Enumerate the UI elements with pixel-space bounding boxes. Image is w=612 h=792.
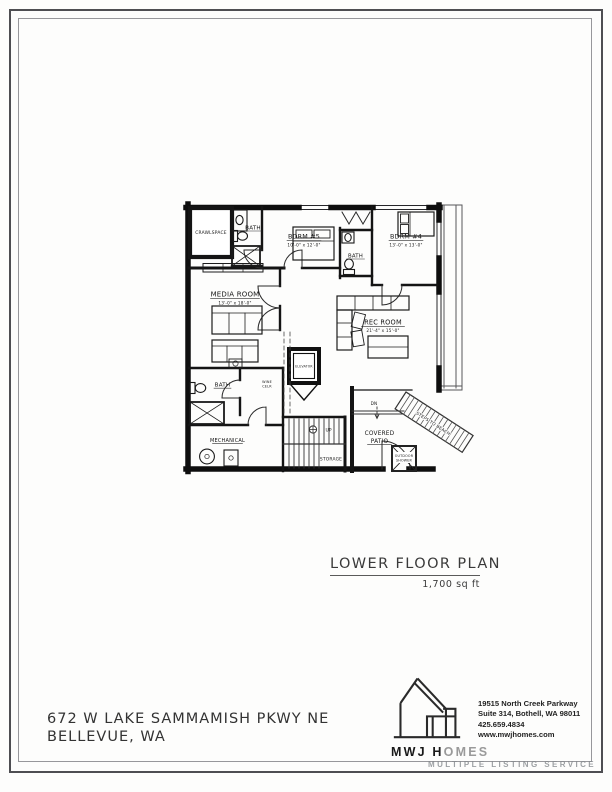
room-dims-bdrm4: 13'-0" x 13'-0" xyxy=(389,243,422,248)
room-label-storage: STORAGE xyxy=(320,457,342,463)
room-label-outdoor-shower-1: OUTDOOR xyxy=(395,454,414,458)
room-label-wine-2: CELR xyxy=(262,384,272,388)
toilet xyxy=(345,259,354,269)
address-line-2: BELLEVUE, WA xyxy=(47,729,329,747)
plan-title: LOWER FLOOR PLAN xyxy=(330,556,480,576)
bifold-closet-door xyxy=(342,212,370,224)
furnace xyxy=(224,450,238,466)
room-label-bdrm5: BDRM #5 xyxy=(288,233,320,241)
room-dims-media-room: 13'-0" x 18'-0" xyxy=(218,301,251,306)
patio-steps xyxy=(352,407,404,419)
contact-phone: 425.659.4834 xyxy=(478,720,580,730)
steps-to-beach: STEPS TO BEACH xyxy=(395,392,473,452)
room-label-bath-lower: BATH xyxy=(215,383,231,389)
plan-title-block: LOWER FLOOR PLAN 1,700 sq ft xyxy=(330,556,480,590)
room-dims-rec-room: 21'-4" x 15'-0" xyxy=(366,328,399,333)
property-address: 672 W LAKE SAMMAMISH PKWY NE BELLEVUE, W… xyxy=(47,711,329,746)
room-label-media-room: MEDIA ROOM xyxy=(211,291,260,299)
stair-label-up: UP xyxy=(326,428,332,434)
room-label-rec-room: REC ROOM xyxy=(364,319,402,327)
mls-watermark: MULTIPLE LISTING SERVICE xyxy=(380,760,596,769)
water-heater xyxy=(200,449,215,464)
contact-address-line-1: 19515 North Creek Parkway xyxy=(478,699,580,709)
floor-plan-flyer-page: STEPS TO BEACH xyxy=(0,0,612,792)
side-table xyxy=(229,359,242,368)
elevator-shaft xyxy=(289,349,319,400)
floor-plan-drawing: STEPS TO BEACH xyxy=(0,0,612,792)
builder-contact-info: 19515 North Creek Parkway Suite 314, Bot… xyxy=(478,699,580,740)
room-label-bath-upper: BATH xyxy=(245,226,261,232)
room-label-covered-patio-2: PATIO xyxy=(371,439,389,445)
builder-name-dark: MWJ H xyxy=(391,745,444,759)
room-label-crawlspace: CRAWLSPACE xyxy=(195,230,226,236)
room-label-bath-mid: BATH xyxy=(348,254,363,260)
room-label-wine-1: WINE xyxy=(262,380,272,384)
room-label-mechanical: MECHANICAL xyxy=(210,438,245,444)
room-label-bdrm4: BDRM #4 xyxy=(390,233,422,241)
room-label-covered-patio-1: COVERED xyxy=(365,431,395,437)
contact-website: www.mwjhomes.com xyxy=(478,730,580,740)
media-sofa xyxy=(212,306,262,334)
builder-name: MWJ HOMES xyxy=(391,745,469,759)
stair-label-dn: DN xyxy=(371,401,378,406)
contact-address-line-2: Suite 314, Bothell, WA 98011 xyxy=(478,709,580,719)
plan-area: 1,700 sq ft xyxy=(330,579,480,590)
room-label-elevator: ELEVATOR xyxy=(295,365,313,369)
builder-name-light: OMES xyxy=(444,745,490,759)
address-line-1: 672 W LAKE SAMMAMISH PKWY NE xyxy=(47,711,329,729)
room-label-outdoor-shower-2: SHOWER xyxy=(396,459,413,463)
mwj-homes-logo-icon xyxy=(391,668,463,742)
room-dims-bdrm5: 10'-0" x 12'-0" xyxy=(287,243,320,248)
